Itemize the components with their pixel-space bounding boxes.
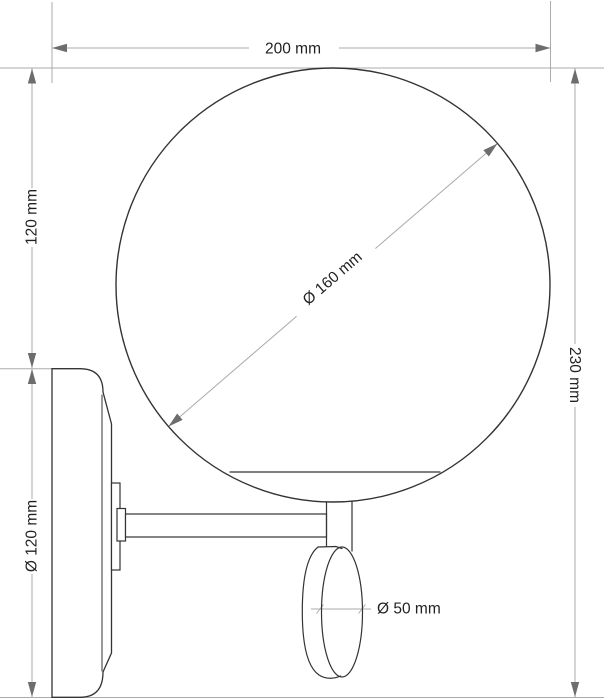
arrow-backplate-bottom — [28, 682, 36, 697]
mounting-collar — [117, 509, 126, 542]
arrow-width-left — [52, 44, 67, 52]
dim-label-overall-height: 230 mm — [566, 347, 583, 403]
backplate-profile — [52, 369, 112, 698]
bulb-disc-ellipse — [322, 547, 363, 677]
dim-label-globe-diameter: Ø 160 mm — [300, 249, 366, 309]
arrow-width-right — [536, 44, 551, 52]
dim-label-top-offset: 120 mm — [24, 189, 41, 245]
arrow-height-top — [571, 69, 579, 84]
dim-label-overall-width: 200 mm — [265, 41, 321, 58]
wall-arm — [126, 514, 327, 537]
arrow-backplate-top — [28, 369, 36, 384]
arrow-offset-bottom — [28, 353, 36, 368]
lamp-technical-drawing: 200 mm 120 mm Ø 120 mm 230 mm Ø 160 mm Ø… — [0, 0, 608, 700]
dim-label-bulb-diameter: Ø 50 mm — [377, 601, 441, 618]
dim-label-backplate-diameter: Ø 120 mm — [24, 500, 41, 572]
arrow-height-bottom — [571, 682, 579, 697]
drawing-svg: 200 mm 120 mm Ø 120 mm 230 mm Ø 160 mm Ø… — [0, 0, 608, 700]
arrow-offset-top — [28, 69, 36, 84]
